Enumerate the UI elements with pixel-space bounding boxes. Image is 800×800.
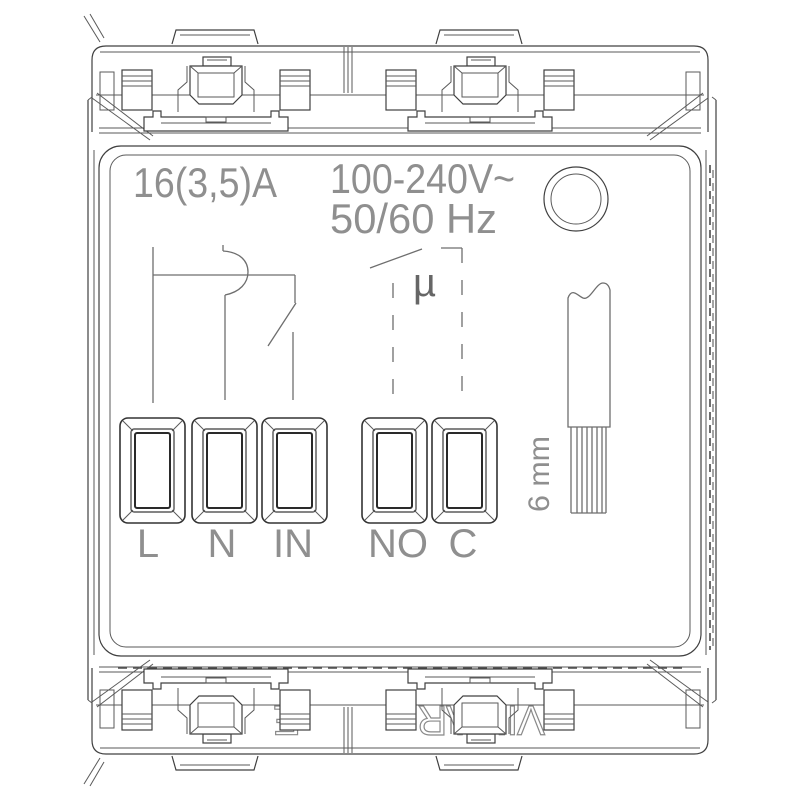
rating-current-text: 16(3,5)A xyxy=(133,159,277,206)
terminal-n-label: N xyxy=(208,522,237,566)
switch-blade xyxy=(268,303,296,346)
switch-circuit-schematic xyxy=(153,245,296,403)
wire-crossover-arc xyxy=(223,251,248,295)
top-mounting-band xyxy=(84,14,716,140)
terminal-block: L N IN NO C xyxy=(120,418,497,566)
relay-contact-schematic: µ xyxy=(370,248,462,400)
terminal-n xyxy=(192,418,257,523)
terminal-no xyxy=(362,418,427,523)
terminal-l xyxy=(120,418,185,523)
micro-disconnection-symbol: µ xyxy=(413,261,436,305)
terminal-l-label: L xyxy=(137,522,159,566)
rating-frequency-text: 50/60 Hz xyxy=(330,195,497,242)
ratings-marking: 16(3,5)A 100-240V~ 50/60 Hz xyxy=(133,155,515,242)
terminal-c xyxy=(432,418,497,523)
terminal-in-label: IN xyxy=(273,522,313,566)
wiring-diagram-drawing: VIMAR E 16(3,5)A 100-240V~ 50/60 Hz µ xyxy=(0,0,800,800)
technical-drawing-page: VIMAR E 16(3,5)A 100-240V~ 50/60 Hz µ xyxy=(0,0,800,800)
wire-strip-illustration: 6 mm xyxy=(523,283,610,513)
terminal-in xyxy=(262,418,327,523)
wire-strip-length-label: 6 mm xyxy=(523,436,556,512)
screw-hole xyxy=(544,167,608,231)
wire-insulation xyxy=(568,283,610,427)
terminal-c-label: C xyxy=(449,522,478,566)
bottom-mounting-band xyxy=(84,660,716,786)
terminal-no-label: NO xyxy=(368,522,428,566)
wire-strands xyxy=(571,427,606,513)
